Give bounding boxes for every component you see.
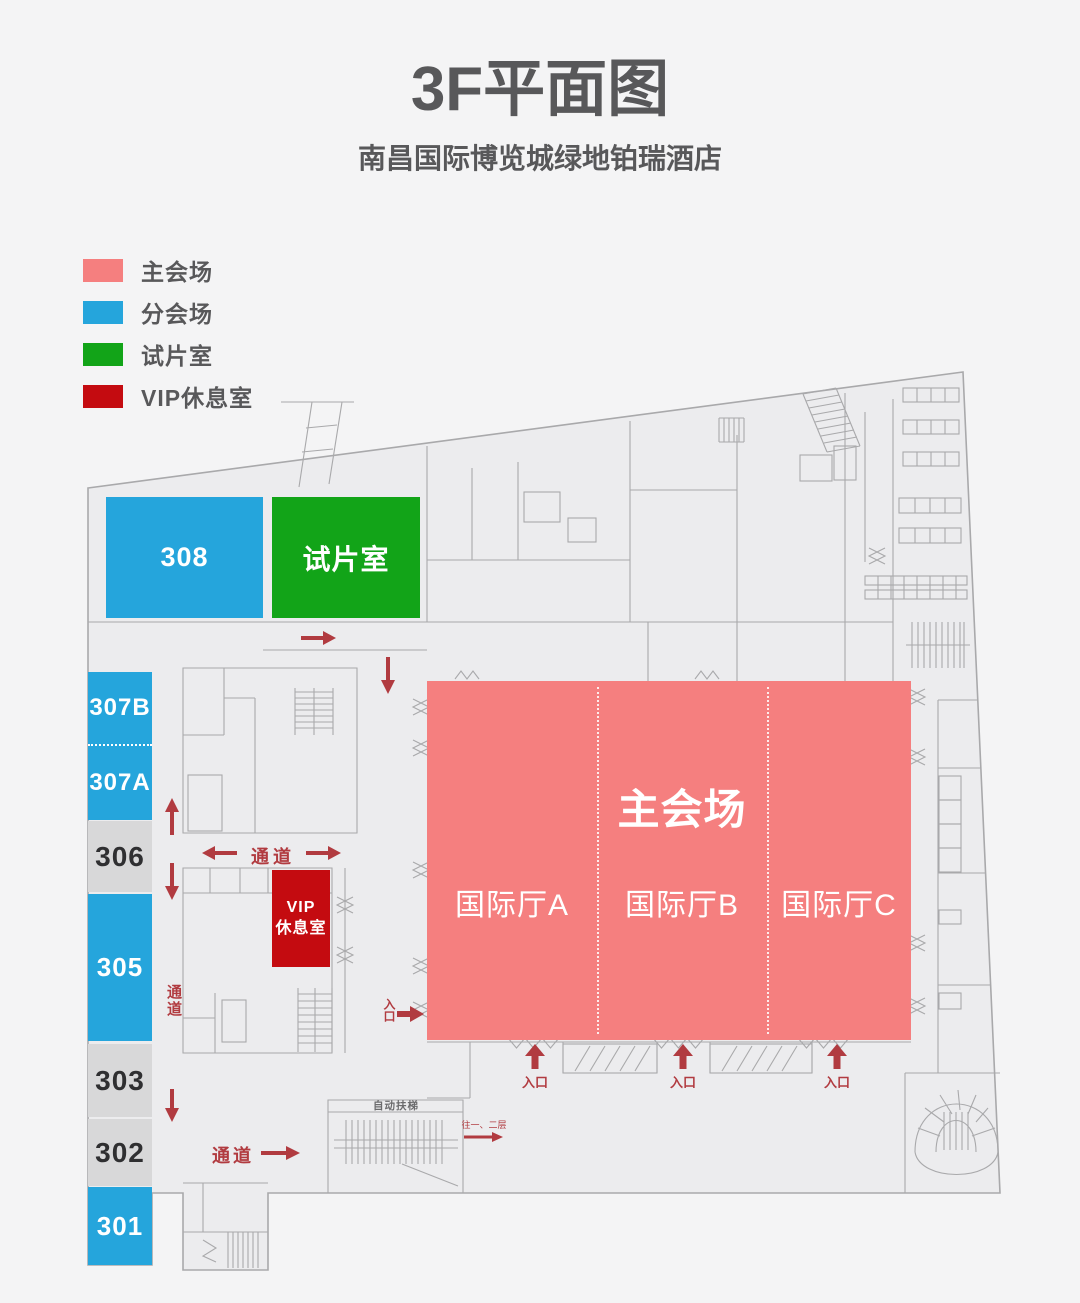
screening-room-label: 试片室 — [302, 538, 389, 578]
floorplan-background — [0, 0, 1080, 1303]
arrow-left-icon — [202, 846, 238, 860]
vip-lounge-label-line2: 休息室 — [275, 919, 326, 940]
entrance-label: 入口 — [663, 1072, 703, 1091]
room-306-label: 306 — [95, 841, 145, 873]
entrance-arrow-up-icon — [673, 1044, 693, 1070]
room-306: 306 — [88, 821, 152, 892]
arrow-right-icon — [463, 1131, 503, 1143]
arrow-up-icon — [165, 798, 179, 836]
arrow-right-icon — [305, 846, 341, 860]
arrow-down-icon — [165, 1088, 179, 1122]
escalator-label: 自动扶梯 — [358, 1098, 434, 1113]
arrow-down-icon — [165, 862, 179, 900]
room-307b-label: 307B — [89, 694, 150, 722]
entrance-label: 入口 — [817, 1072, 857, 1091]
screening-room: 试片室 — [272, 497, 420, 618]
floorplan-page: 3F平面图 南昌国际博览城绿地铂瑞酒店 主会场 分会场 试片室 VIP休息室 — [0, 0, 1080, 1303]
arrow-right-icon — [300, 631, 336, 645]
room-303-label: 303 — [95, 1065, 145, 1097]
main-hall-label: 主会场 — [597, 781, 767, 831]
hall-divider-ab — [597, 687, 599, 1034]
arrow-down-icon — [381, 656, 395, 694]
arrow-right-icon — [260, 1146, 300, 1160]
room-302-label: 302 — [95, 1137, 145, 1169]
room-307b: 307B — [88, 672, 152, 746]
corridor-label: 通道 — [243, 843, 303, 869]
hall-a-label: 国际厅A — [427, 884, 597, 920]
hall-c-label: 国际厅C — [767, 884, 911, 920]
room-308: 308 — [106, 497, 263, 618]
vip-lounge: VIP 休息室 — [272, 870, 330, 967]
room-301-label: 301 — [97, 1211, 143, 1242]
entrance-arrow-up-icon — [525, 1044, 545, 1070]
room-301: 301 — [88, 1187, 152, 1265]
room-303: 303 — [88, 1044, 152, 1117]
room-302: 302 — [88, 1119, 152, 1186]
entrance-arrow-right-icon — [396, 1006, 424, 1022]
corridor-label: 通道 — [205, 1142, 261, 1168]
hall-b-label: 国际厅B — [597, 884, 767, 920]
vip-lounge-label-line1: VIP — [287, 898, 316, 919]
entrance-label: 入口 — [515, 1072, 555, 1091]
entrance-arrow-up-icon — [827, 1044, 847, 1070]
room-305-label: 305 — [97, 952, 143, 983]
room-308-label: 308 — [160, 542, 208, 573]
to-floors-label: 往一、二层 — [458, 1118, 510, 1131]
room-305: 305 — [88, 894, 152, 1041]
room-307a-label: 307A — [89, 769, 150, 797]
main-hall: 主会场 国际厅A 国际厅B 国际厅C — [427, 681, 911, 1040]
room-307a: 307A — [88, 746, 152, 820]
corridor-vertical-label: 通道 — [163, 984, 184, 1018]
hall-divider-bc — [767, 687, 769, 1034]
